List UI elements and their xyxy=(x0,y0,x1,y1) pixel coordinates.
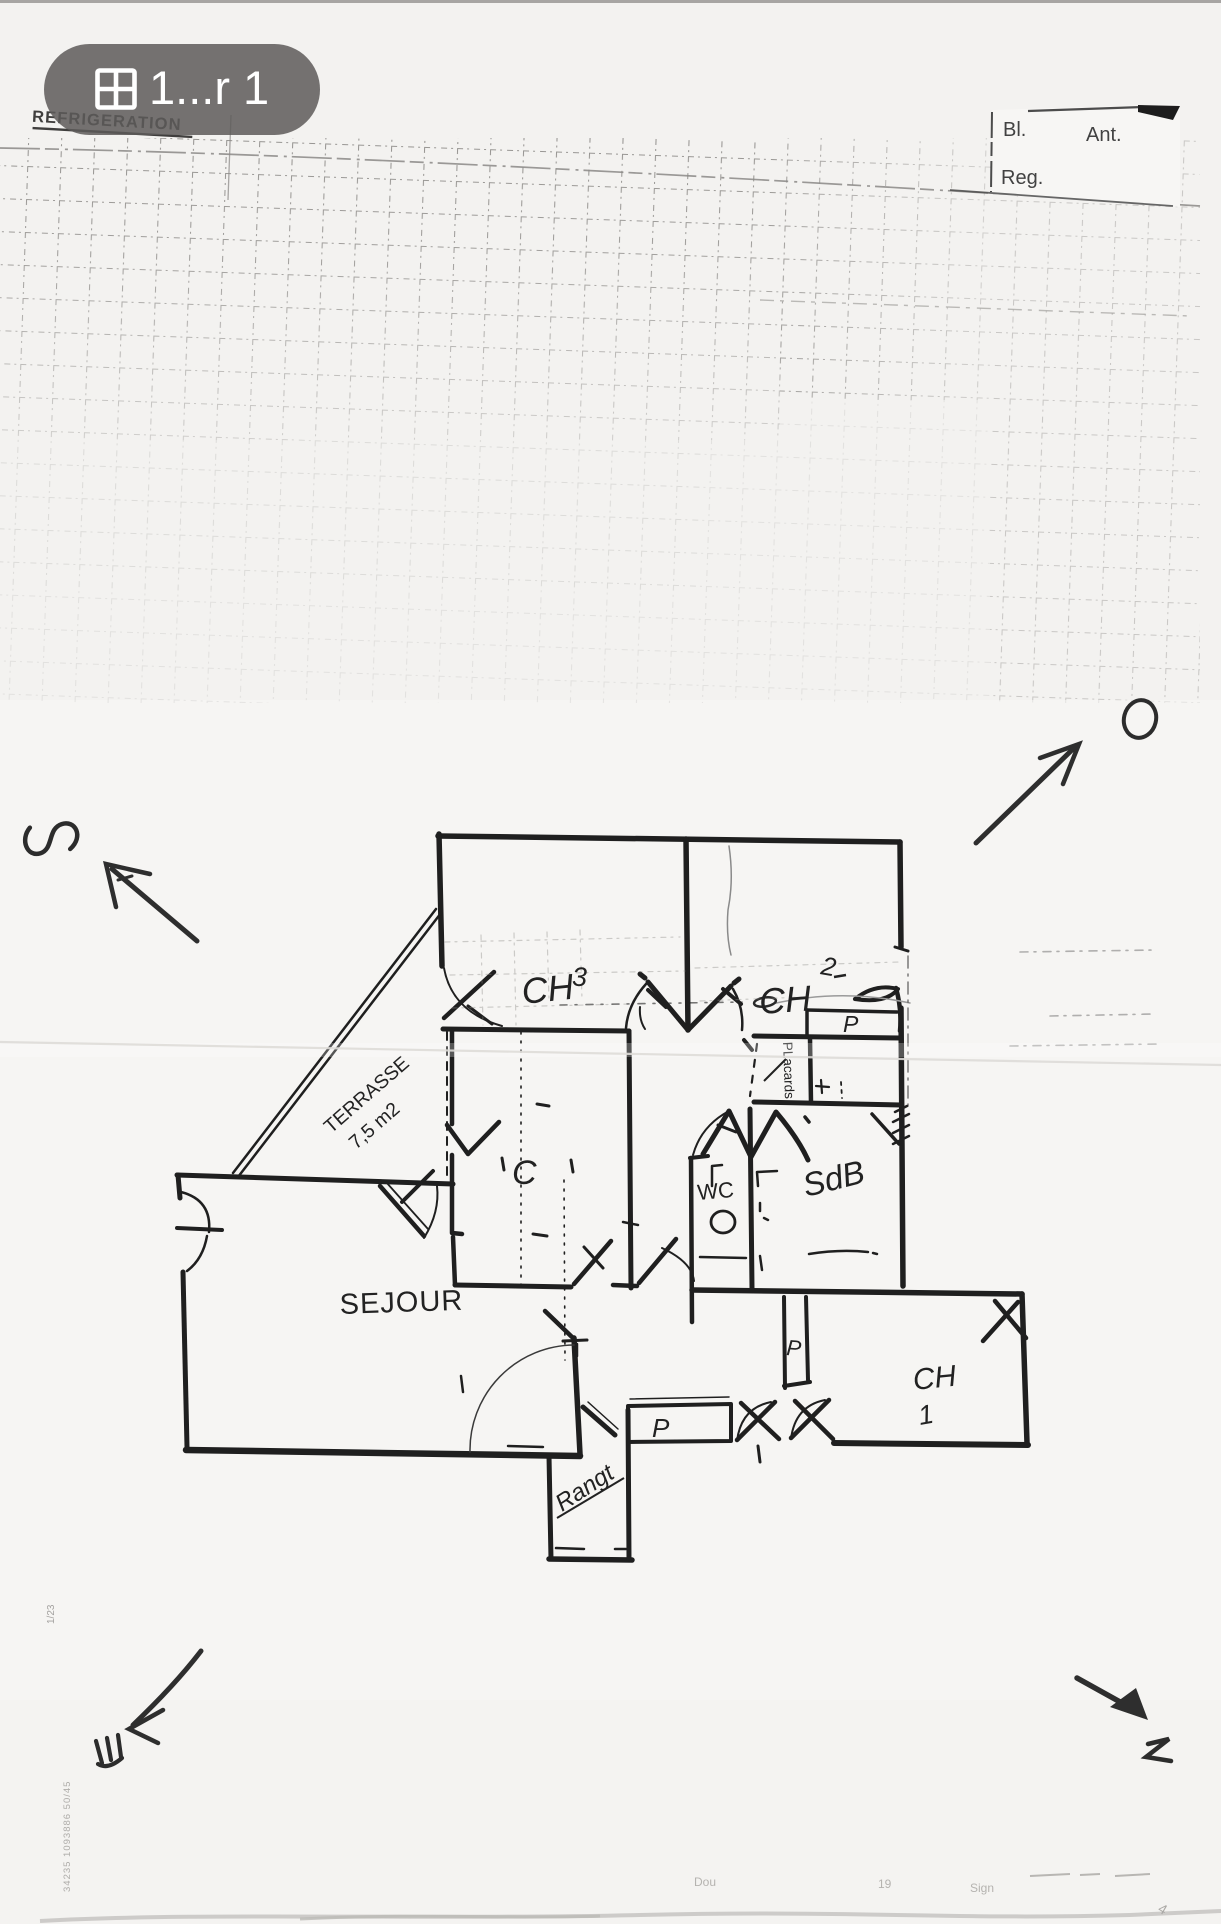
svg-text:19: 19 xyxy=(878,1877,892,1891)
svg-text:Reg.: Reg. xyxy=(1001,167,1043,189)
svg-text:WC: WC xyxy=(696,1177,735,1205)
svg-text:1...r 1: 1...r 1 xyxy=(149,61,269,114)
svg-text:SEJOUR: SEJOUR xyxy=(339,1285,464,1321)
svg-text:CH: CH xyxy=(520,966,577,1012)
svg-text:Bl.: Bl. xyxy=(1003,119,1026,141)
svg-text:Ant.: Ant. xyxy=(1086,124,1122,146)
svg-text:1/23: 1/23 xyxy=(46,1604,57,1624)
svg-text:P: P xyxy=(786,1335,803,1361)
svg-text:P: P xyxy=(843,1011,859,1037)
svg-text:CH: CH xyxy=(758,977,814,1022)
svg-text:C: C xyxy=(512,1154,537,1192)
svg-text:P: P xyxy=(652,1413,670,1443)
svg-text:Dou: Dou xyxy=(694,1875,716,1889)
svg-text:34235 1093886 50/45: 34235 1093886 50/45 xyxy=(62,1781,73,1892)
svg-text:CH: CH xyxy=(911,1360,958,1397)
svg-text:3: 3 xyxy=(572,962,587,992)
svg-text:Sign: Sign xyxy=(970,1881,994,1895)
